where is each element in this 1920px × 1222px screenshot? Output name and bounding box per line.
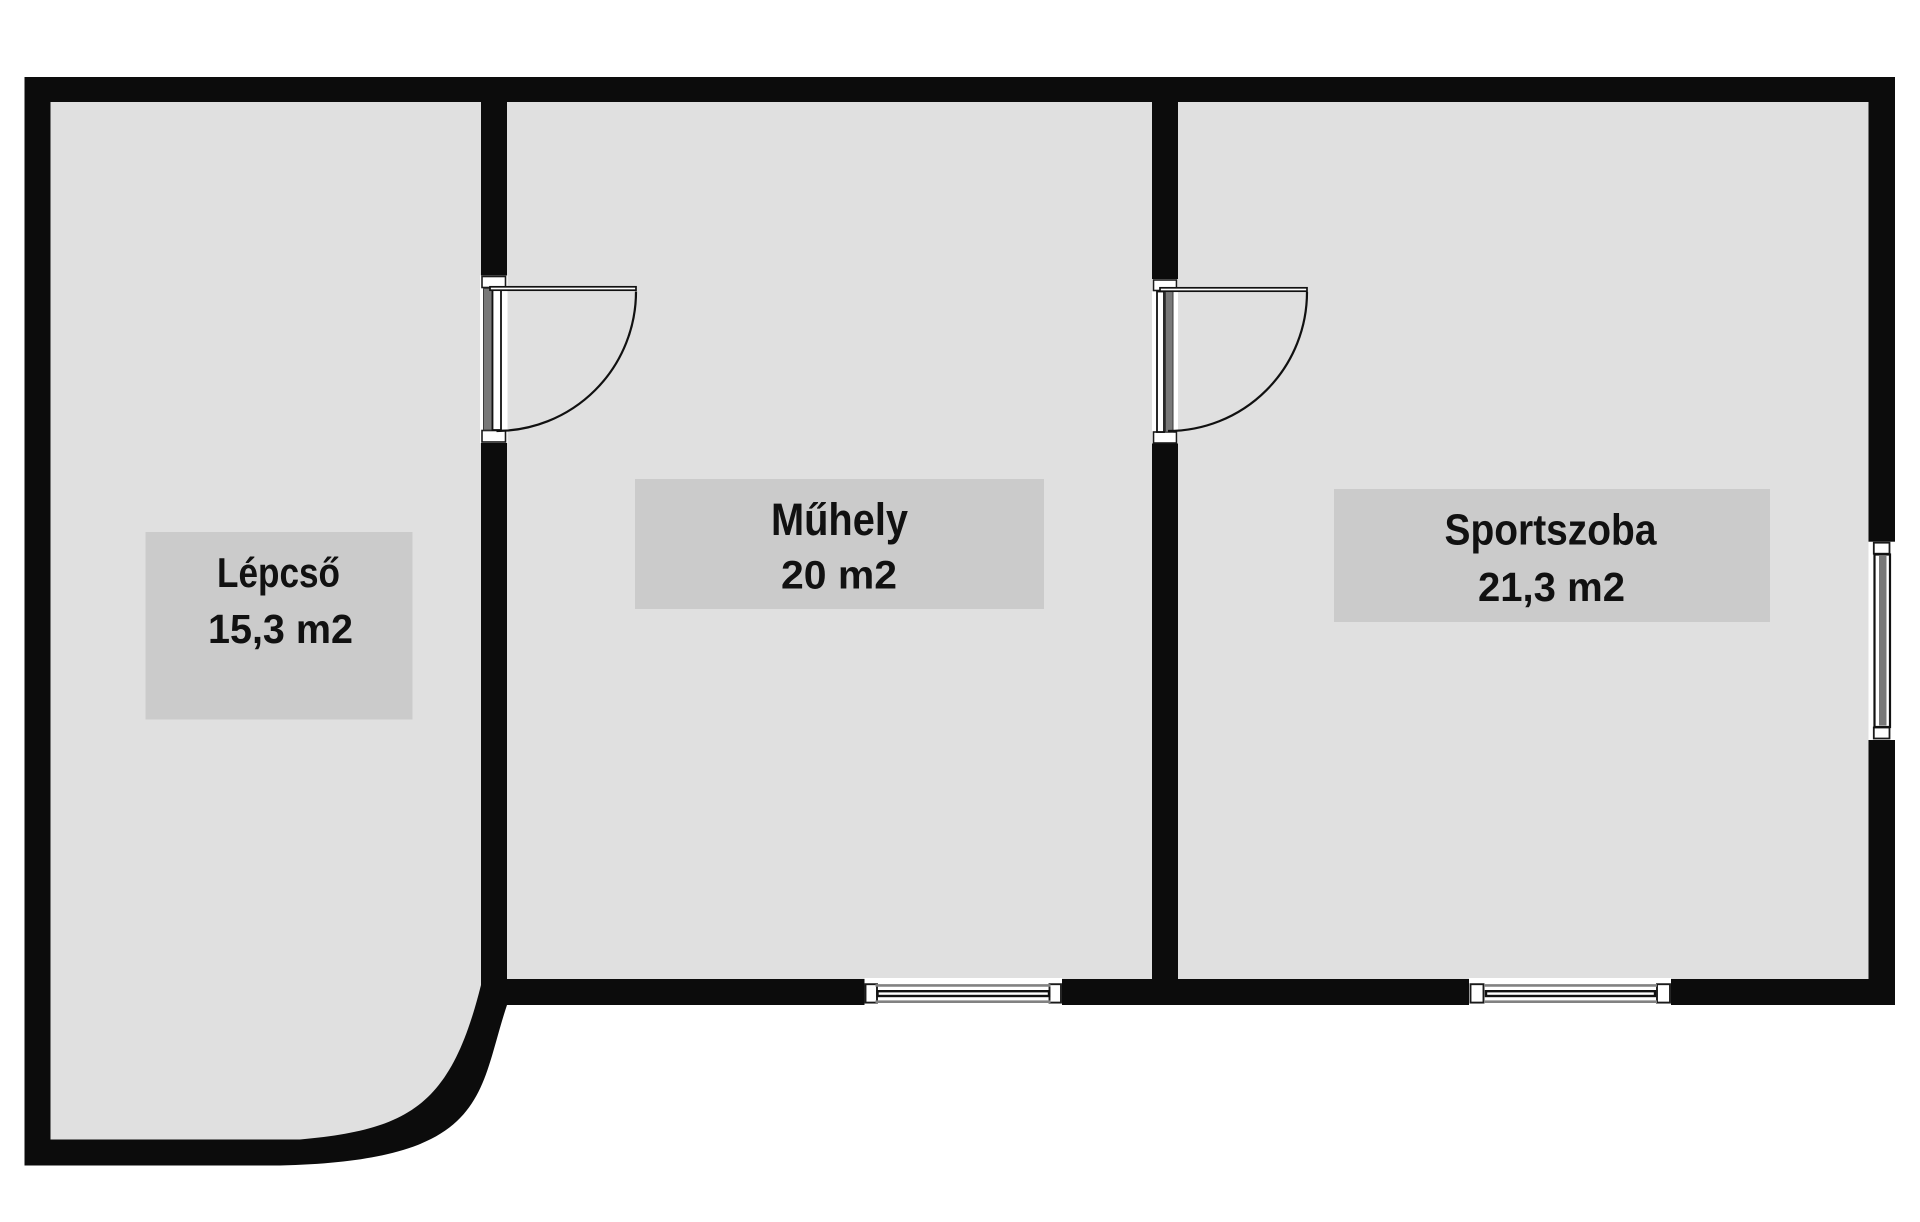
svg-text:21,3 m2: 21,3 m2: [1478, 564, 1625, 610]
svg-text:Lépcső: Lépcső: [217, 549, 340, 596]
svg-text:Sportszoba: Sportszoba: [1445, 506, 1657, 555]
svg-text:15,3 m2: 15,3 m2: [208, 606, 353, 652]
svg-text:Műhely: Műhely: [771, 494, 908, 545]
svg-text:20 m2: 20 m2: [781, 554, 897, 598]
